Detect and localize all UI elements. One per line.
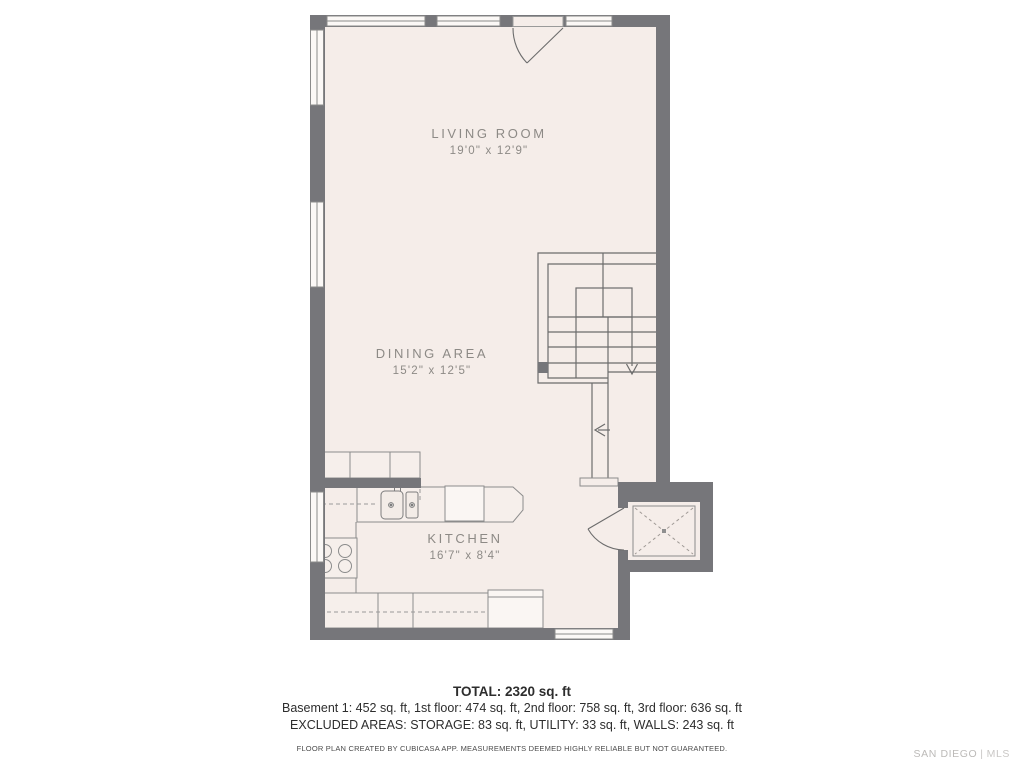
total-area: TOTAL: 2320 sq. ft — [0, 683, 1024, 700]
kitchen-island-appliance — [445, 486, 484, 521]
window — [311, 492, 324, 562]
dining-counter — [320, 452, 420, 478]
area-summary: TOTAL: 2320 sq. ft Basement 1: 452 sq. f… — [0, 683, 1024, 734]
storage-area-x-box — [628, 502, 700, 560]
floor-areas: Basement 1: 452 sq. ft, 1st floor: 474 s… — [0, 700, 1024, 717]
window — [566, 16, 612, 26]
kitchen-dims: 16'7" x 8'4" — [427, 550, 502, 562]
excluded-areas: EXCLUDED AREAS: STORAGE: 83 sq. ft, UTIL… — [0, 717, 1024, 734]
dining-area-name: DINING AREA — [376, 346, 488, 361]
room-label-kitchen: KITCHEN 16'7" x 8'4" — [427, 531, 502, 562]
window — [437, 16, 500, 26]
kitchen-lower-counter — [312, 593, 488, 628]
living-room-dims: 19'0" x 12'9" — [431, 145, 546, 157]
window — [311, 30, 324, 105]
window — [555, 629, 613, 639]
stair-landing — [580, 478, 618, 486]
mls-watermark: SAN DIEGO | MLS — [914, 748, 1010, 760]
room-label-dining-area: DINING AREA 15'2" x 12'5" — [376, 346, 488, 377]
floor-plan-page: LIVING ROOM 19'0" x 12'9" DINING AREA 15… — [0, 0, 1024, 768]
watermark-separator: | — [980, 748, 983, 760]
watermark-suffix: MLS — [987, 748, 1010, 760]
room-label-living-room: LIVING ROOM 19'0" x 12'9" — [431, 126, 546, 157]
living-room-name: LIVING ROOM — [431, 126, 546, 141]
floor-plan-drawing — [0, 0, 1024, 768]
kitchen-name: KITCHEN — [427, 531, 502, 546]
watermark-brand: SAN DIEGO — [914, 748, 978, 760]
dining-area-dims: 15'2" x 12'5" — [376, 365, 488, 377]
disclaimer-text: FLOOR PLAN CREATED BY CUBICASA APP. MEAS… — [0, 744, 1024, 753]
window — [311, 202, 324, 287]
refrigerator — [488, 590, 543, 628]
window — [327, 16, 425, 26]
